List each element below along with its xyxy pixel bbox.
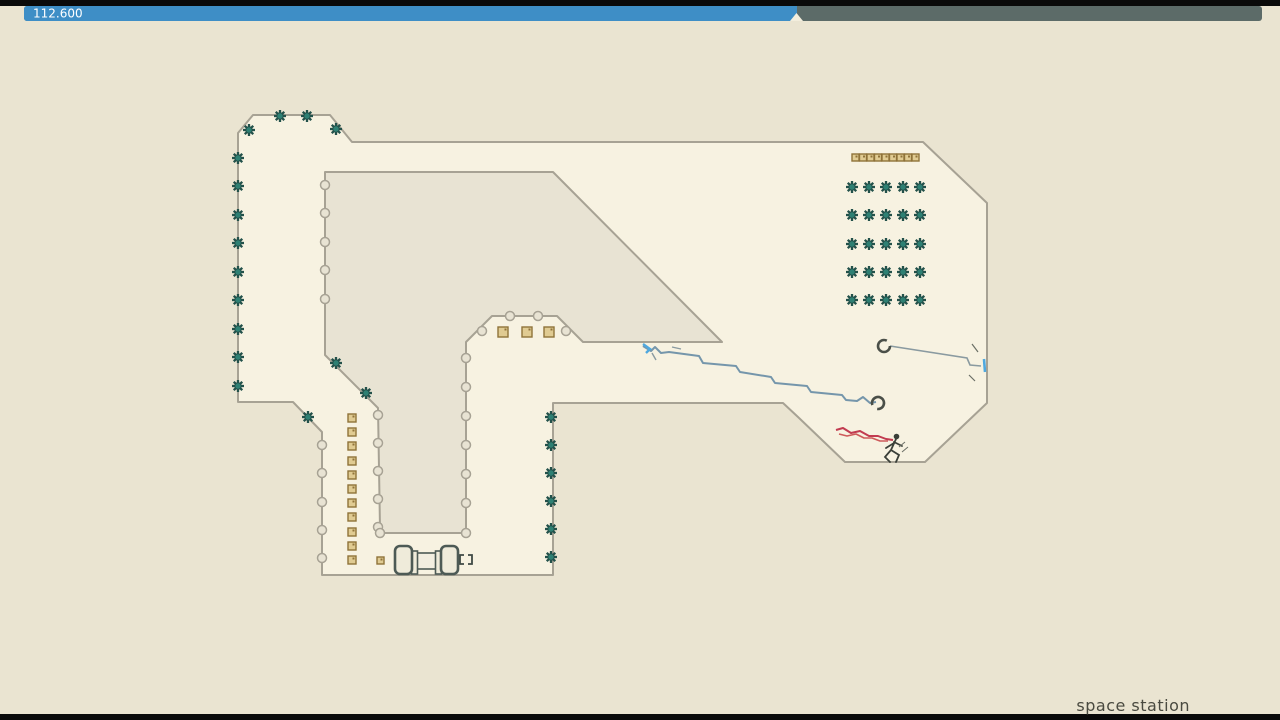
gold-piece (852, 154, 859, 161)
wall-bump (321, 209, 330, 218)
mine-icon (880, 238, 892, 250)
wall-bump (376, 529, 385, 538)
wall-bump (462, 441, 471, 450)
mine-icon (863, 238, 875, 250)
wall-bump (318, 526, 327, 535)
mine-icon (232, 237, 244, 249)
mine-icon (897, 266, 909, 278)
wall-bump (462, 412, 471, 421)
mine-icon (545, 439, 557, 451)
mine-icon (846, 181, 858, 193)
timer-text: 112.600 (33, 7, 83, 21)
mine-icon (880, 209, 892, 221)
wall-bump (374, 495, 383, 504)
wall-bump (321, 181, 330, 190)
wall-bump (562, 327, 571, 336)
gold-piece (348, 442, 356, 450)
mine-icon (897, 238, 909, 250)
wall-bump (318, 554, 327, 563)
mine-icon (545, 523, 557, 535)
mine-icon (914, 266, 926, 278)
mine-icon (880, 266, 892, 278)
mine-icon (545, 495, 557, 507)
mine-icon (863, 209, 875, 221)
gold-piece (348, 457, 356, 465)
mine-icon (232, 294, 244, 306)
wall-bump (374, 411, 383, 420)
gold-piece (875, 154, 882, 161)
mine-icon (846, 266, 858, 278)
mine-icon (914, 209, 926, 221)
mine-icon (846, 238, 858, 250)
hud-time-bar: 112.600 (24, 6, 1262, 21)
mine-icon (846, 209, 858, 221)
mine-icon (897, 294, 909, 306)
gold-piece (348, 556, 356, 564)
mine-icon (846, 294, 858, 306)
wall-bump (374, 439, 383, 448)
mine-icon (232, 180, 244, 192)
level-canvas[interactable]: 112.600 space station (0, 0, 1280, 720)
mine-icon (880, 181, 892, 193)
wall-bump (321, 266, 330, 275)
gold-piece (860, 154, 867, 161)
mine-icon (914, 181, 926, 193)
mine-icon (914, 294, 926, 306)
mine-icon (232, 323, 244, 335)
mine-icon (863, 266, 875, 278)
mine-icon (897, 209, 909, 221)
wall-bump (462, 499, 471, 508)
game-screen: 112.600 space station (0, 0, 1280, 720)
wall-bump (321, 238, 330, 247)
mine-icon (863, 294, 875, 306)
mine-icon (880, 294, 892, 306)
mine-icon (302, 411, 314, 423)
wall-bump (462, 354, 471, 363)
mine-icon (360, 387, 372, 399)
mine-icon (330, 123, 342, 135)
mine-icon (232, 266, 244, 278)
gold-piece (522, 327, 532, 337)
wall-bump (534, 312, 543, 321)
mine-icon (545, 467, 557, 479)
gold-piece (867, 154, 874, 161)
gold-piece (348, 528, 356, 536)
gold-piece (348, 485, 356, 493)
wall-bump (462, 529, 471, 538)
mine-icon (232, 351, 244, 363)
wall-bump (478, 327, 487, 336)
mine-icon (232, 152, 244, 164)
gold-piece (348, 542, 356, 550)
time-bar-elapsed (24, 6, 797, 21)
gold-piece (544, 327, 554, 337)
mine-icon (330, 357, 342, 369)
wall-blue-tick (984, 359, 985, 372)
gold-piece (377, 557, 384, 564)
gold-piece (348, 428, 356, 436)
gold-piece (905, 154, 912, 161)
gold-piece (912, 154, 919, 161)
gold-piece (348, 471, 356, 479)
mine-icon (274, 110, 286, 122)
wall-bump (318, 469, 327, 478)
mine-icon (545, 411, 557, 423)
mine-icon (863, 181, 875, 193)
gold-piece (348, 513, 356, 521)
wall-bump (506, 312, 515, 321)
gold-piece (348, 414, 356, 422)
mine-icon (301, 110, 313, 122)
wall-bump (321, 295, 330, 304)
gold-piece (348, 499, 356, 507)
mine-icon (243, 124, 255, 136)
wall-bump (374, 467, 383, 476)
gold-piece (882, 154, 889, 161)
gold-piece (890, 154, 897, 161)
gold-piece (897, 154, 904, 161)
mine-icon (897, 181, 909, 193)
level-name: space station (1076, 696, 1190, 715)
gold-piece (498, 327, 508, 337)
wall-bump (318, 441, 327, 450)
mine-icon (914, 238, 926, 250)
letterbox-top (0, 0, 1280, 6)
wall-bump (462, 383, 471, 392)
mine-icon (232, 209, 244, 221)
mine-icon (232, 380, 244, 392)
wall-bump (318, 498, 327, 507)
wall-bump (462, 470, 471, 479)
mine-icon (545, 551, 557, 563)
